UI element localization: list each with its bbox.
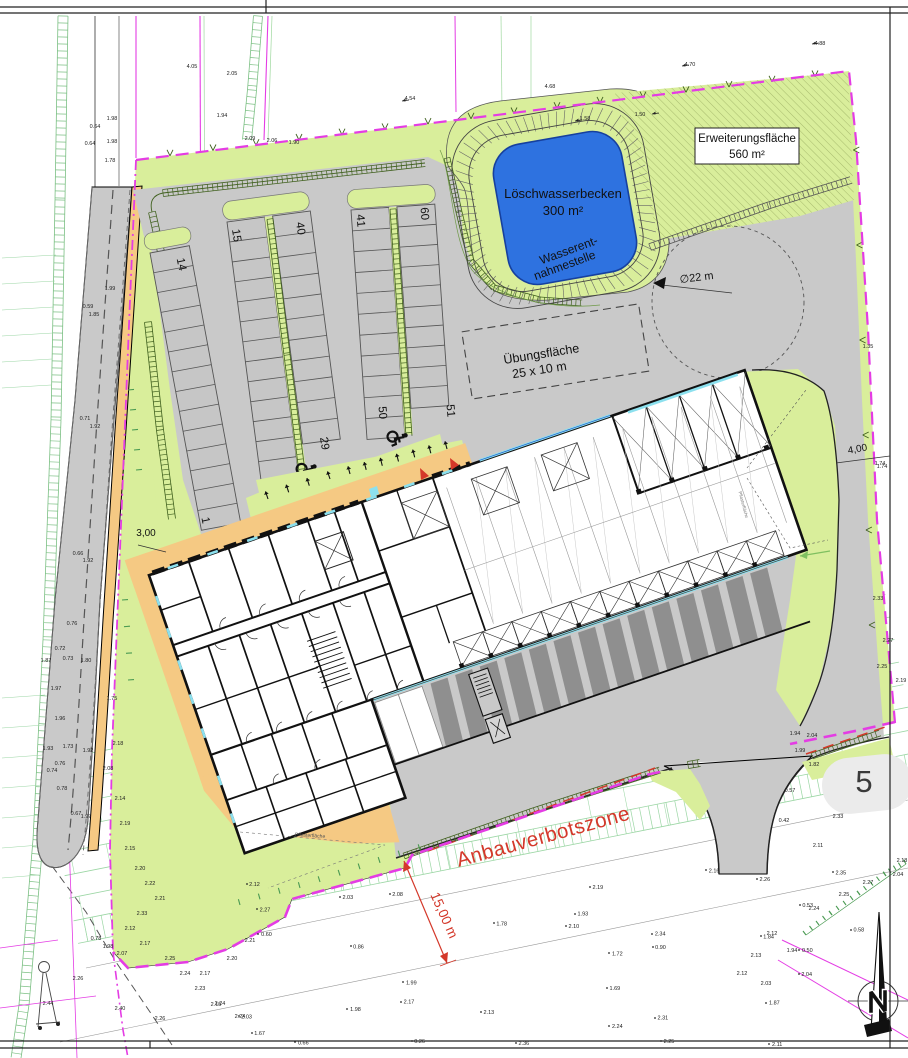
svg-text:2.24: 2.24 [180, 971, 191, 977]
svg-text:15: 15 [229, 228, 243, 243]
svg-text:1.96: 1.96 [55, 716, 66, 722]
svg-text:2.27: 2.27 [863, 880, 874, 886]
svg-text:2.25: 2.25 [877, 664, 888, 670]
svg-text:51: 51 [443, 404, 456, 418]
svg-text:2.19: 2.19 [593, 885, 604, 891]
svg-text:1.90: 1.90 [289, 140, 300, 146]
svg-text:60: 60 [417, 207, 430, 221]
svg-text:0.86: 0.86 [353, 945, 364, 951]
svg-text:2.13: 2.13 [484, 1010, 495, 1016]
svg-text:1.87: 1.87 [769, 1001, 780, 1007]
svg-text:1.87: 1.87 [41, 658, 52, 664]
svg-text:4.68: 4.68 [545, 84, 556, 90]
svg-text:1.99: 1.99 [105, 286, 116, 292]
svg-text:2.04: 2.04 [807, 733, 818, 739]
svg-text:2.24: 2.24 [809, 906, 820, 912]
svg-text:2.09: 2.09 [245, 136, 256, 142]
svg-text:2.06: 2.06 [267, 138, 278, 144]
svg-text:1.78: 1.78 [496, 921, 507, 927]
svg-text:2.18: 2.18 [897, 858, 908, 864]
svg-text:0.78: 0.78 [57, 786, 68, 792]
svg-text:1.92: 1.92 [83, 558, 94, 564]
svg-text:0.58: 0.58 [854, 928, 865, 934]
svg-text:1.94: 1.94 [790, 731, 801, 737]
svg-text:0.60: 0.60 [261, 932, 272, 938]
svg-text:Löschwasserbecken: Löschwasserbecken [504, 186, 622, 201]
svg-text:4.88: 4.88 [815, 41, 826, 47]
svg-text:2.35: 2.35 [835, 870, 846, 876]
svg-text:2.17: 2.17 [140, 941, 151, 947]
svg-text:2.23: 2.23 [195, 986, 206, 992]
svg-text:2.18: 2.18 [113, 741, 124, 747]
svg-text:2.21: 2.21 [155, 896, 166, 902]
svg-text:1.75: 1.75 [107, 696, 118, 702]
svg-text:1.94: 1.94 [787, 948, 798, 954]
svg-text:4.05: 4.05 [187, 64, 198, 70]
svg-text:0.42: 0.42 [779, 818, 790, 824]
svg-text:1.78: 1.78 [105, 158, 116, 164]
svg-text:0.66: 0.66 [298, 1040, 309, 1046]
svg-text:2.16: 2.16 [709, 868, 720, 874]
svg-text:1.99: 1.99 [795, 748, 806, 754]
svg-text:2.40: 2.40 [115, 1006, 126, 1012]
svg-text:2.26: 2.26 [155, 1016, 166, 1022]
svg-text:2.33: 2.33 [873, 596, 884, 602]
svg-text:2.27: 2.27 [260, 907, 271, 913]
svg-text:1.67: 1.67 [254, 1031, 265, 1037]
svg-text:2.17: 2.17 [200, 971, 211, 977]
svg-text:2.33: 2.33 [137, 911, 148, 917]
svg-text:0.26: 0.26 [414, 1039, 425, 1045]
svg-text:2.14: 2.14 [115, 796, 126, 802]
svg-text:1.99: 1.99 [406, 981, 417, 987]
svg-text:300 m²: 300 m² [543, 203, 584, 218]
svg-text:2.04: 2.04 [801, 972, 812, 978]
svg-text:0.66: 0.66 [73, 551, 84, 557]
svg-text:4.70: 4.70 [685, 62, 696, 68]
svg-text:2.36: 2.36 [519, 1041, 530, 1047]
svg-text:2.12: 2.12 [767, 931, 778, 937]
svg-text:0.90: 0.90 [655, 945, 666, 951]
svg-text:2.25: 2.25 [165, 956, 176, 962]
svg-text:2.25: 2.25 [839, 892, 850, 898]
svg-text:2.08: 2.08 [392, 892, 403, 898]
svg-text:2.15: 2.15 [125, 846, 136, 852]
svg-text:1.93: 1.93 [43, 746, 54, 752]
svg-text:2.24: 2.24 [612, 1024, 623, 1030]
svg-text:1.72: 1.72 [612, 951, 623, 957]
svg-text:1.74: 1.74 [875, 461, 886, 467]
svg-text:0.59: 0.59 [83, 304, 94, 310]
svg-text:1.98: 1.98 [107, 116, 118, 122]
svg-text:40: 40 [293, 221, 307, 236]
svg-text:1.73: 1.73 [63, 744, 74, 750]
svg-text:2.20: 2.20 [135, 866, 146, 872]
svg-text:2.33: 2.33 [833, 814, 844, 820]
svg-text:2.27: 2.27 [883, 638, 894, 644]
svg-text:0.64: 0.64 [90, 124, 101, 130]
svg-text:2.22: 2.22 [145, 881, 156, 887]
svg-text:2.21: 2.21 [245, 938, 256, 944]
svg-text:1.82: 1.82 [809, 762, 820, 768]
svg-text:1.97: 1.97 [51, 686, 62, 692]
svg-text:2.31: 2.31 [658, 1016, 669, 1022]
svg-text:1.98: 1.98 [103, 944, 114, 950]
svg-text:1.80: 1.80 [81, 658, 92, 664]
svg-text:29: 29 [317, 436, 331, 451]
svg-text:3,00: 3,00 [136, 528, 156, 539]
svg-text:2.34: 2.34 [655, 932, 666, 938]
svg-text:0.76: 0.76 [55, 761, 66, 767]
svg-text:2.08: 2.08 [103, 766, 114, 772]
svg-text:2.03: 2.03 [342, 895, 353, 901]
svg-text:1.35: 1.35 [863, 344, 874, 350]
svg-text:0.78: 0.78 [91, 936, 102, 942]
svg-text:1.92: 1.92 [83, 748, 94, 754]
svg-text:1.97: 1.97 [81, 814, 92, 820]
svg-text:Erweiterungsfläche: Erweiterungsfläche [698, 133, 796, 145]
svg-text:4.54: 4.54 [405, 96, 416, 102]
svg-text:0.72: 0.72 [55, 646, 66, 652]
svg-text:2.07: 2.07 [117, 951, 128, 957]
svg-text:2.12: 2.12 [125, 926, 136, 932]
svg-text:1.94: 1.94 [217, 113, 228, 119]
svg-text:560 m²: 560 m² [729, 149, 765, 161]
svg-text:41: 41 [353, 214, 366, 228]
svg-text:2.11: 2.11 [813, 843, 823, 849]
svg-text:2.44: 2.44 [43, 1001, 54, 1007]
svg-text:2.17: 2.17 [404, 1000, 415, 1006]
svg-text:1.50: 1.50 [635, 112, 646, 118]
svg-text:2.24: 2.24 [215, 1001, 226, 1007]
svg-text:1.92: 1.92 [90, 424, 101, 430]
svg-text:1.93: 1.93 [578, 912, 589, 918]
svg-text:2.26: 2.26 [73, 976, 84, 982]
svg-text:2.25: 2.25 [664, 1039, 675, 1045]
svg-text:2.13: 2.13 [751, 953, 762, 959]
svg-text:2.11: 2.11 [772, 1042, 782, 1048]
svg-text:0.64: 0.64 [85, 141, 96, 147]
svg-text:2.12: 2.12 [249, 882, 260, 888]
svg-text:0.73: 0.73 [63, 656, 74, 662]
svg-text:2.19: 2.19 [896, 678, 907, 684]
svg-text:0.76: 0.76 [67, 621, 78, 627]
svg-text:2.19: 2.19 [120, 821, 131, 827]
svg-text:1.98: 1.98 [350, 1007, 361, 1013]
svg-text:2.20: 2.20 [227, 956, 238, 962]
svg-text:0.74: 0.74 [47, 768, 58, 774]
svg-text:0.57: 0.57 [785, 788, 796, 794]
svg-text:2.10: 2.10 [569, 924, 580, 930]
svg-text:0.50: 0.50 [802, 948, 813, 954]
svg-text:2.03: 2.03 [761, 981, 772, 987]
svg-text:1.98: 1.98 [107, 139, 118, 145]
svg-text:2.05: 2.05 [227, 71, 238, 77]
svg-text:5: 5 [855, 764, 872, 799]
svg-text:1.85: 1.85 [89, 312, 100, 318]
svg-text:50: 50 [375, 406, 388, 420]
svg-text:1.69: 1.69 [610, 986, 621, 992]
svg-text:1.58: 1.58 [580, 116, 591, 122]
svg-text:2.03: 2.03 [241, 1014, 252, 1020]
svg-text:2.12: 2.12 [737, 971, 748, 977]
svg-text:2.26: 2.26 [759, 877, 770, 883]
svg-text:2.04: 2.04 [893, 872, 904, 878]
svg-text:0.71: 0.71 [80, 416, 91, 422]
